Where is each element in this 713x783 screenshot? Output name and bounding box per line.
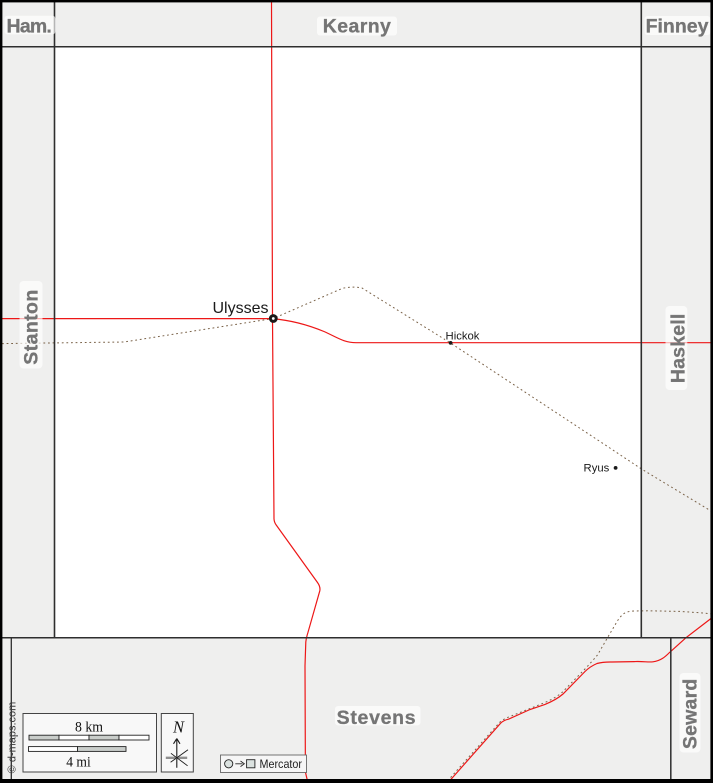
svg-text:Finney: Finney — [646, 15, 709, 37]
svg-text:Stanton: Stanton — [20, 289, 42, 364]
svg-text:Ryus: Ryus — [584, 463, 610, 475]
svg-text:Ulysses: Ulysses — [212, 300, 268, 317]
svg-text:Ham.: Ham. — [7, 15, 52, 37]
svg-text:Hickok: Hickok — [446, 330, 480, 342]
svg-text:N: N — [172, 718, 185, 737]
svg-text:Haskell: Haskell — [667, 313, 689, 383]
svg-text:Mercator: Mercator — [260, 757, 303, 771]
svg-text:8 km: 8 km — [75, 719, 103, 735]
svg-text:Kearny: Kearny — [323, 15, 392, 37]
svg-text:© d-maps.com: © d-maps.com — [6, 702, 18, 774]
svg-text:Stevens: Stevens — [337, 707, 417, 729]
svg-text:Seward: Seward — [679, 679, 701, 750]
svg-text:4 mi: 4 mi — [66, 755, 91, 771]
